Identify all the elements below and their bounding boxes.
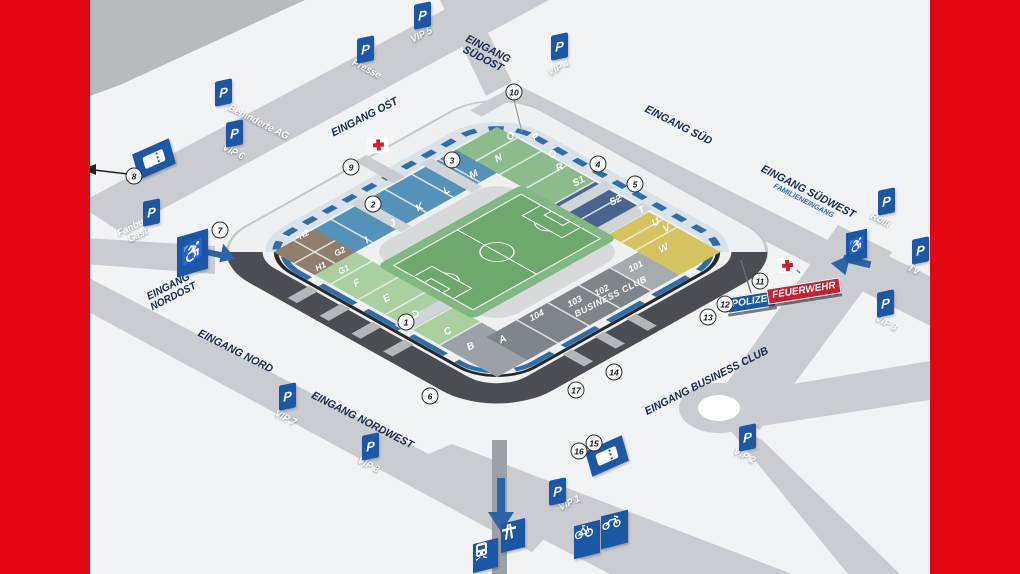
parking-icon-vip2: P (739, 423, 756, 452)
parking-icon-presse: P (357, 35, 374, 64)
wheelchair-icon: ♿ (846, 229, 867, 262)
parking-icon-vip4: P (551, 32, 568, 61)
red-border-right (930, 0, 1020, 574)
parking-icon-rolli: P (878, 187, 895, 216)
gate-badge-8: 8 (126, 168, 143, 185)
gate-badge-16: 16 (571, 443, 588, 460)
parking-icon-vip7: P (279, 382, 296, 411)
motorcycle-icon (601, 510, 628, 550)
first-aid-icon (367, 136, 390, 154)
gate-badge-9: 9 (343, 159, 360, 176)
parking-icon-behinderte-ag: P (215, 78, 232, 107)
gate-badge-2: 2 (365, 196, 382, 213)
gate-badge-15: 15 (586, 435, 603, 452)
gate-badge-7: 7 (212, 222, 229, 239)
gate-badge-3: 3 (444, 152, 461, 169)
parking-icon-vip3: P (877, 289, 894, 318)
motorway-icon (501, 518, 525, 553)
gate-badge-13: 13 (700, 309, 717, 326)
parking-icon-fanbus-gast: P (143, 198, 160, 227)
parking-icon-vip8: P (362, 432, 379, 461)
gate-badge-12: 12 (717, 296, 734, 313)
gate-badge-4: 4 (590, 156, 607, 173)
stadium-area-map: { "colors": { "accent_red": "#e30613", "… (0, 0, 1020, 574)
gate-badge-10: 10 (506, 84, 523, 101)
gate-badge-17: 17 (568, 382, 585, 399)
gate-badge-6: 6 (422, 388, 439, 405)
bicycle-icon (574, 520, 600, 559)
gate-badge-11: 11 (752, 273, 769, 290)
gate-badge-5: 5 (627, 176, 644, 193)
first-aid-icon (777, 257, 797, 274)
gate-badge-14: 14 (606, 364, 623, 381)
parking-icon-tv: P (912, 236, 929, 265)
red-border-left (0, 0, 90, 574)
parking-icon-vip6: P (226, 119, 243, 148)
gate-badge-1: 1 (398, 314, 415, 331)
parking-icon-vip1: P (549, 477, 566, 506)
parking-icon-vip5: P (414, 1, 431, 30)
